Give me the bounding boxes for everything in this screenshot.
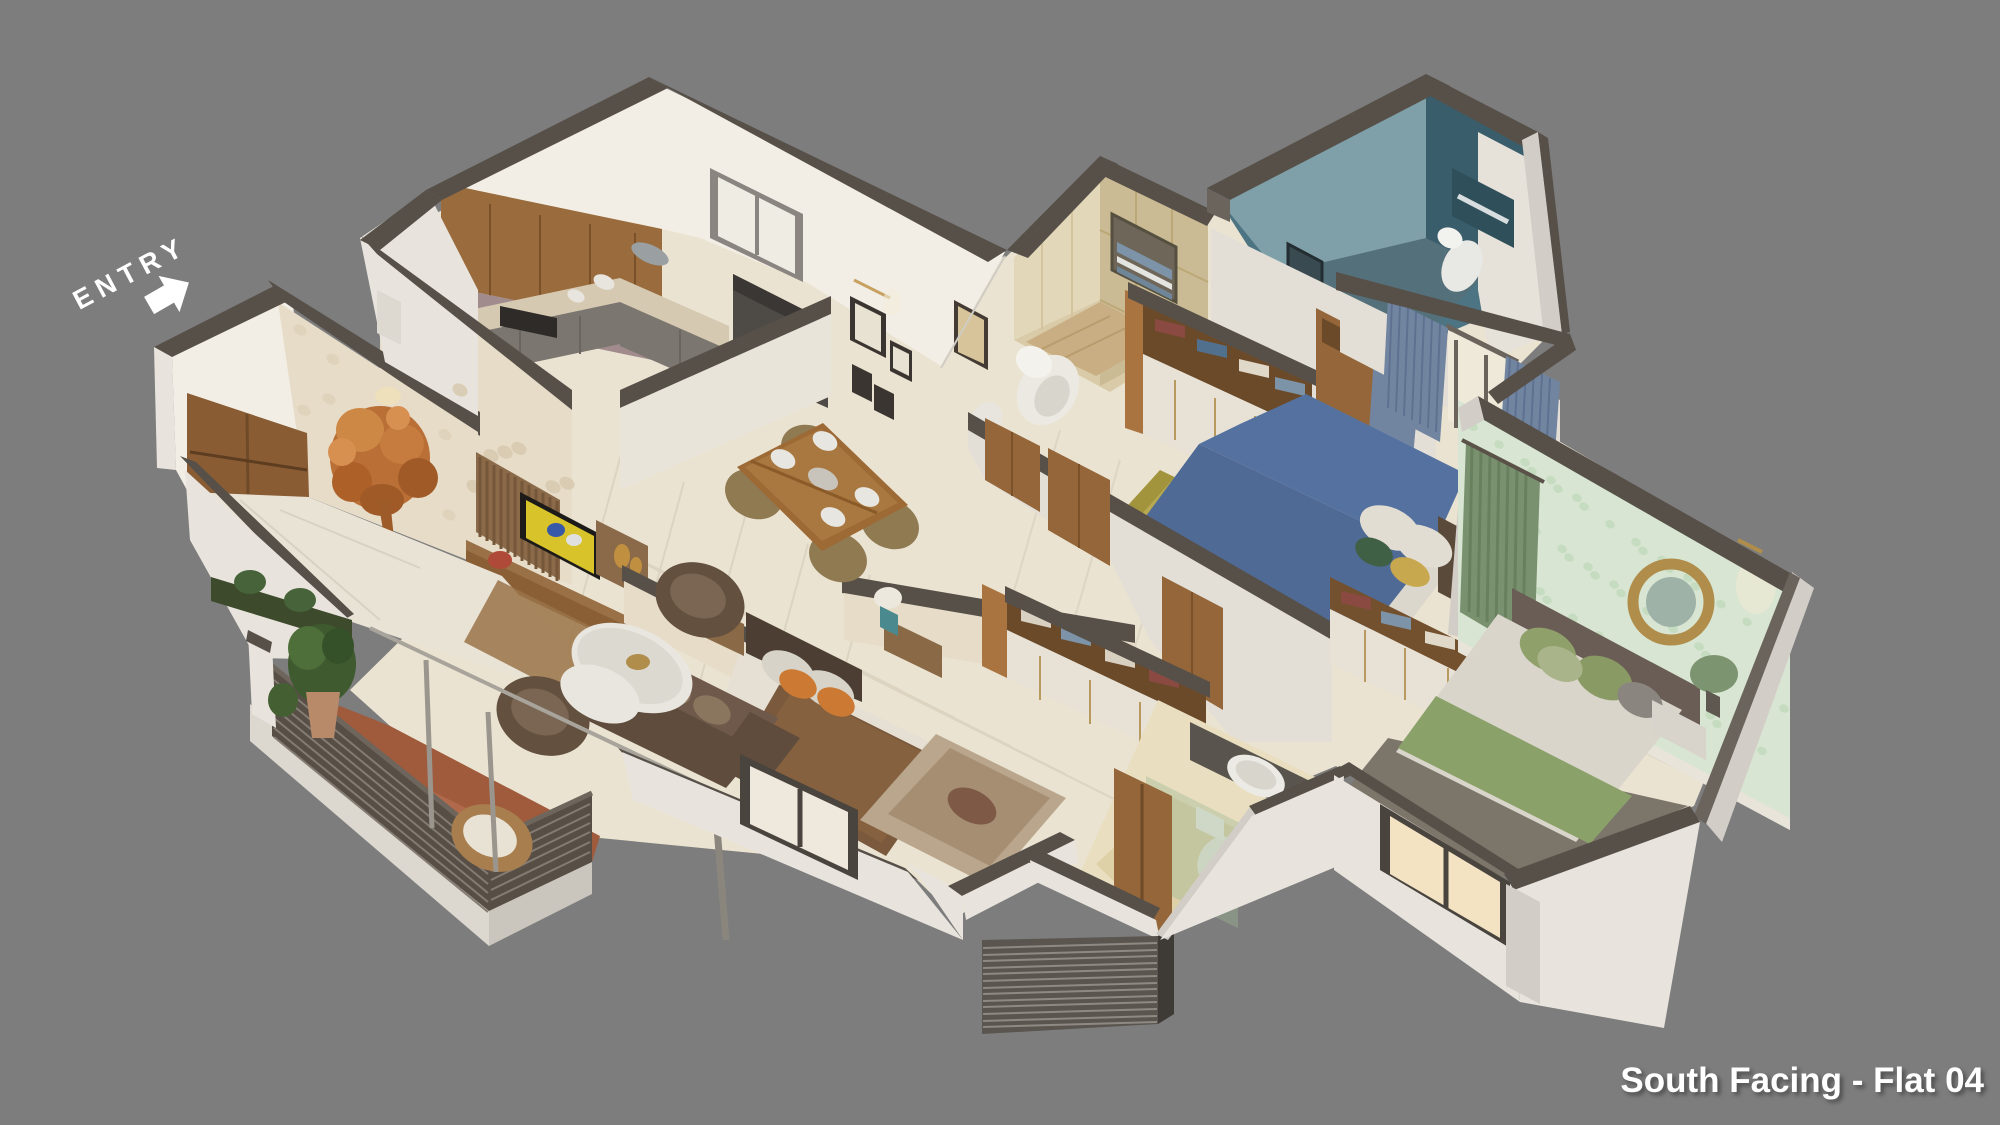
svg-text:South Facing - Flat 04: South Facing - Flat 04: [1620, 1061, 1984, 1100]
